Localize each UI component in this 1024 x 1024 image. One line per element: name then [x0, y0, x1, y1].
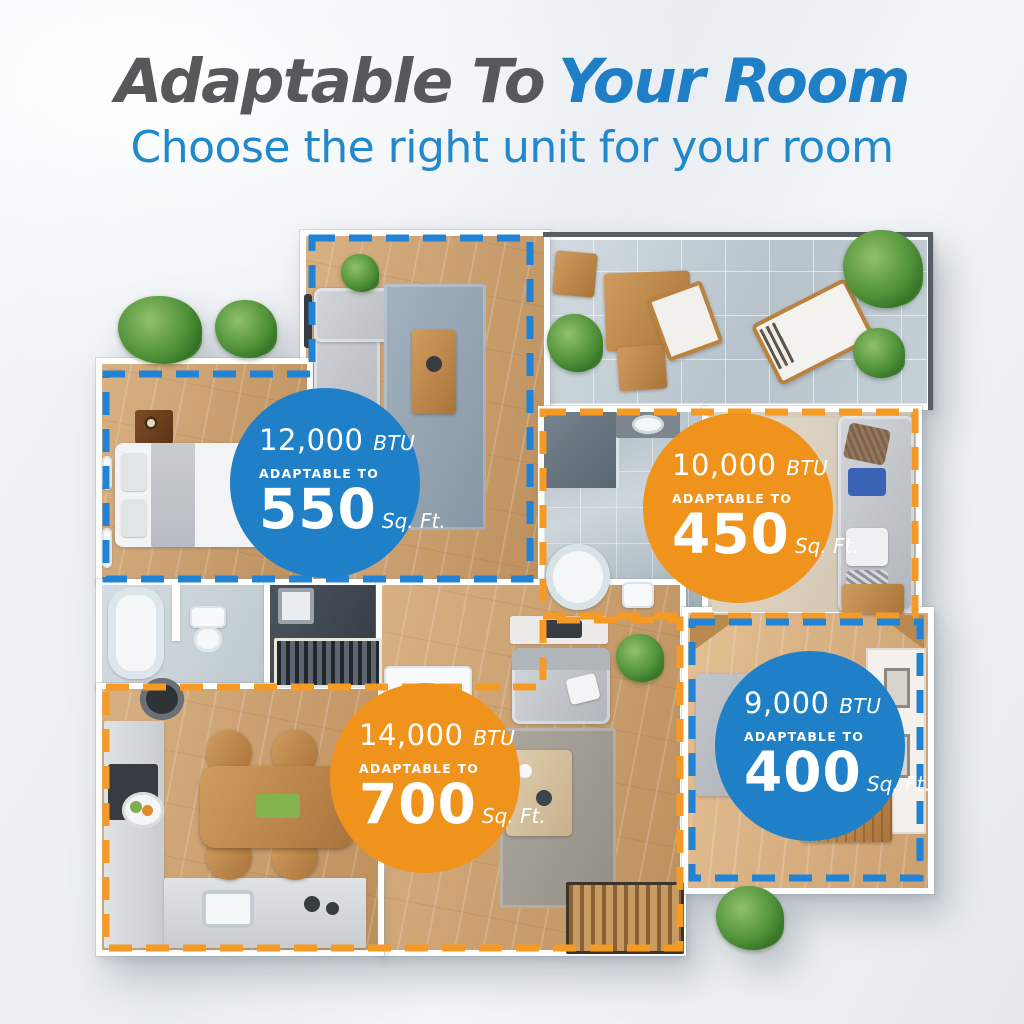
btu-value: 9,000 [744, 686, 830, 720]
area-line: 550 Sq. Ft. [259, 481, 410, 539]
btu-line: 9,000 BTU [744, 686, 895, 720]
area-value: 400 [744, 740, 862, 804]
btu-value: 12,000 [259, 423, 363, 457]
area-unit: Sq. Ft. [382, 509, 446, 533]
area-line: 450 Sq. Ft. [672, 506, 823, 564]
btu-unit: BTU [786, 456, 828, 480]
floor-plan: 12,000 BTU ADAPTABLE TO 550 Sq. Ft. 10,0… [60, 228, 940, 993]
page-subtitle: Choose the right unit for your room [0, 122, 1024, 173]
area-line: 400 Sq. Ft. [744, 744, 895, 802]
infographic-page: { "header": { "title_gray": "Adaptable T… [0, 0, 1024, 1024]
btu-line: 12,000 BTU [259, 423, 410, 457]
area-value: 700 [359, 772, 477, 836]
area-line: 700 Sq. Ft. [359, 776, 510, 834]
area-value: 450 [672, 502, 790, 566]
badge-9000-btu: 9,000 BTU ADAPTABLE TO 400 Sq. Ft. [715, 651, 905, 841]
badge-12000-btu: 12,000 BTU ADAPTABLE TO 550 Sq. Ft. [230, 388, 420, 578]
btu-unit: BTU [839, 694, 881, 718]
page-title: Adaptable ToYour Room [0, 50, 1024, 114]
title-blue-part: Your Room [558, 46, 909, 117]
badge-10000-btu: 10,000 BTU ADAPTABLE TO 450 Sq. Ft. [643, 413, 833, 603]
zone-outlines [60, 228, 940, 993]
btu-line: 10,000 BTU [672, 448, 823, 482]
area-unit: Sq. Ft. [482, 804, 546, 828]
area-unit: Sq. Ft. [795, 534, 859, 558]
btu-unit: BTU [373, 431, 415, 455]
title-gray-part: Adaptable To [115, 46, 544, 117]
badge-14000-btu: 14,000 BTU ADAPTABLE TO 700 Sq. Ft. [330, 683, 520, 873]
area-unit: Sq. Ft. [867, 772, 931, 796]
header: Adaptable ToYour Room Choose the right u… [0, 50, 1024, 173]
btu-unit: BTU [473, 726, 515, 750]
btu-line: 14,000 BTU [359, 718, 510, 752]
area-value: 550 [259, 477, 377, 541]
btu-value: 14,000 [359, 718, 463, 752]
btu-value: 10,000 [672, 448, 776, 482]
